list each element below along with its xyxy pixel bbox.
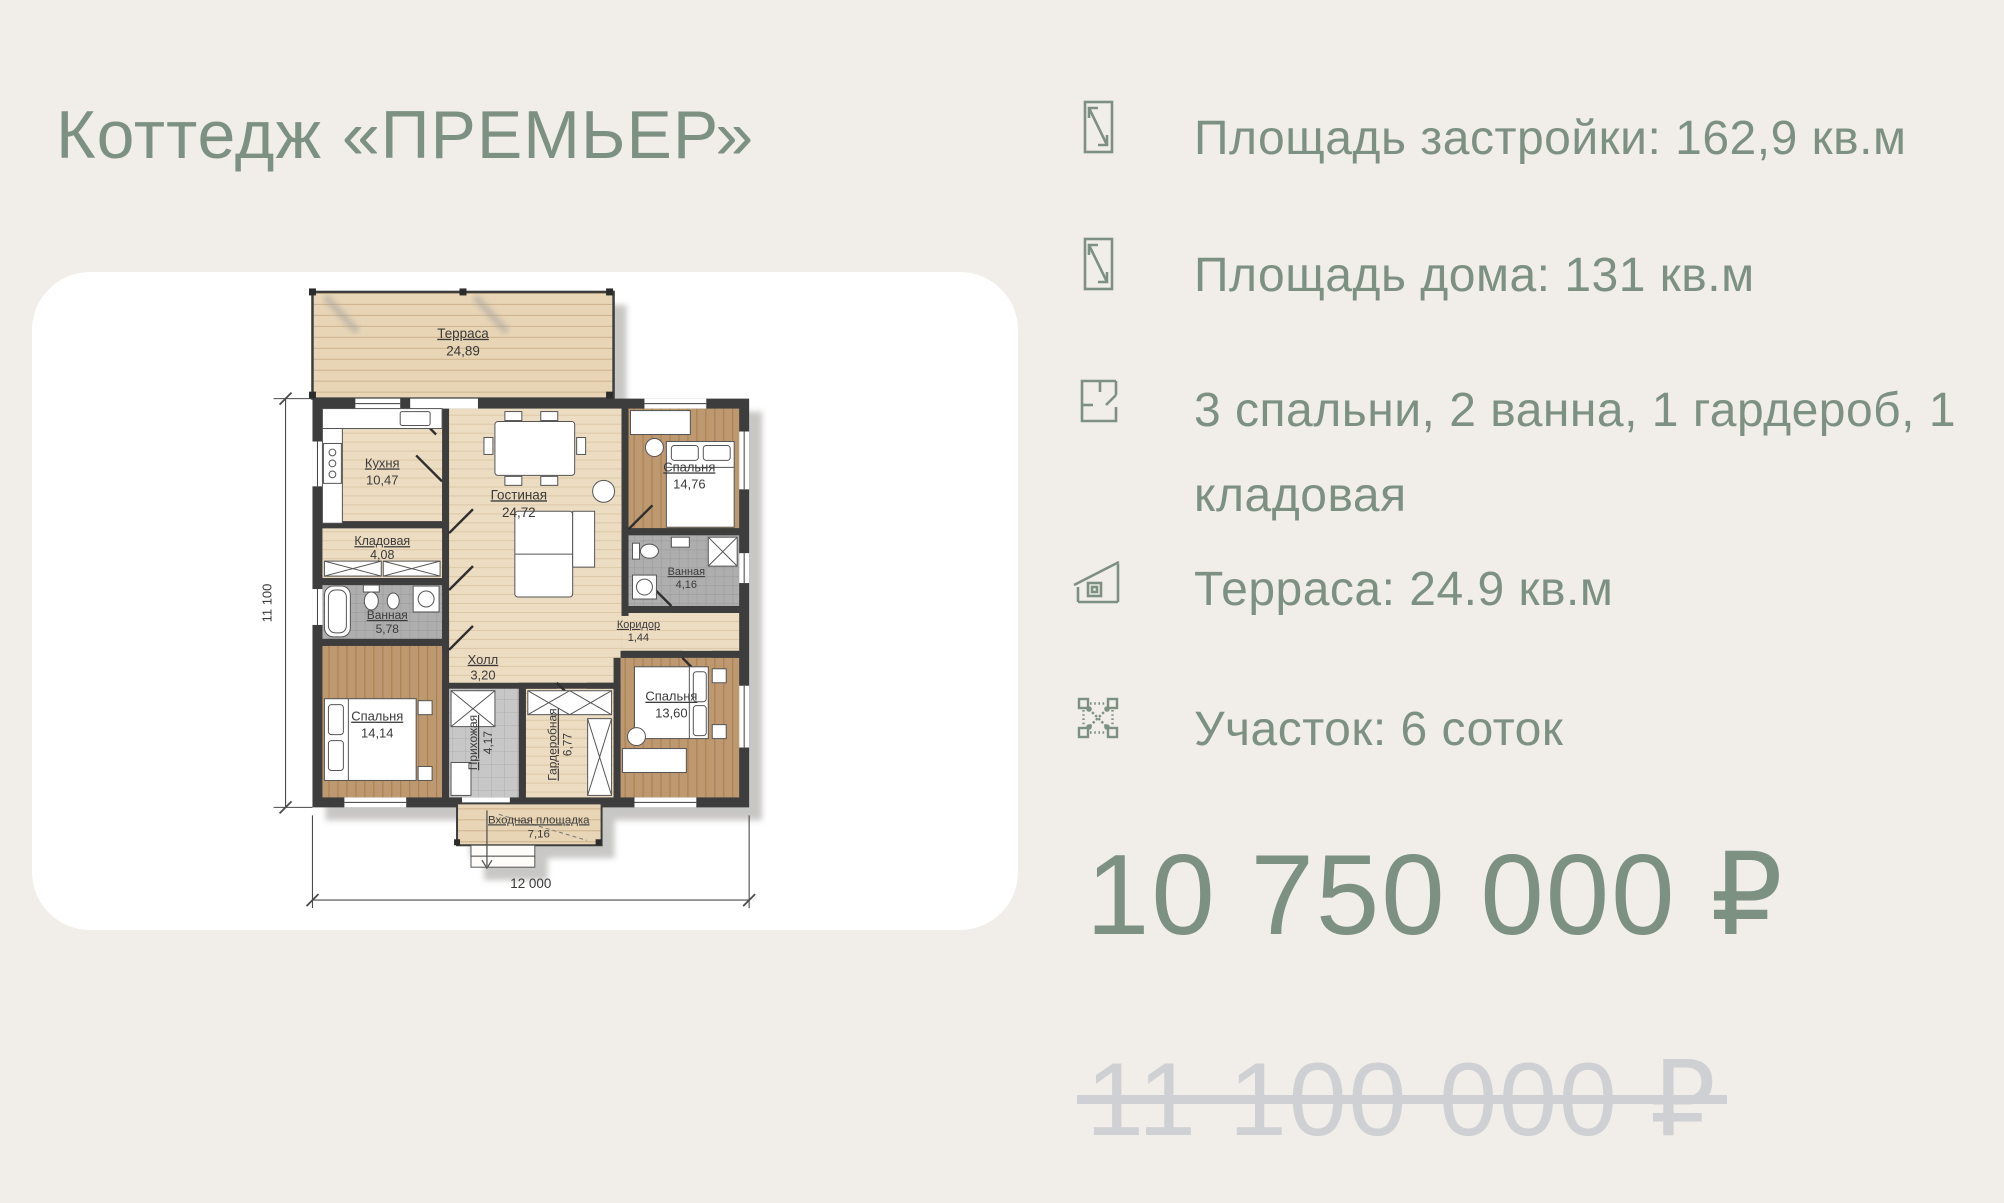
spec-row-rooms: 3 спальни, 2 ванна, 1 гардероб, 1 кладов…: [1072, 368, 1974, 539]
spec-row-house-area: Площадь дома: 131 кв.м: [1072, 233, 1755, 318]
room-label-bedroom-1: Спальня: [351, 709, 403, 724]
spec-build-area-text: Площадь застройки: 162,9 кв.м: [1194, 96, 1906, 181]
room-area-bedroom-1: 14,14: [361, 726, 393, 741]
room-label-terrace: Терраса: [437, 326, 489, 341]
room-label-corridor: Коридор: [617, 619, 660, 631]
spec-terrace-text: Терраса: 24.9 кв.м: [1194, 547, 1613, 632]
spec-plot-text: Участок: 6 соток: [1194, 687, 1563, 772]
floorplan-icon: [1072, 370, 1124, 428]
spec-row-build-area: Площадь застройки: 162,9 кв.м: [1072, 96, 1906, 181]
spec-row-terrace: Терраса: 24.9 кв.м: [1072, 547, 1613, 632]
room-area-entry-hall: 4,17: [481, 731, 495, 755]
old-price: 11 100 000 ₽: [1086, 1038, 1718, 1160]
room-label-kitchen: Кухня: [365, 455, 400, 470]
room-label-storage: Кладовая: [354, 534, 410, 548]
floorplan-card: Терраса 24,89: [32, 272, 1018, 930]
room-label-bedroom-3: Спальня: [645, 689, 697, 704]
room-area-kitchen: 10,47: [366, 472, 398, 487]
room-area-bedroom-3: 13,60: [655, 706, 687, 721]
room-area-bath-2: 4,16: [676, 579, 697, 591]
room-area-living: 24,72: [502, 505, 536, 520]
room-area-storage: 4,08: [370, 548, 394, 562]
room-label-bath-2: Ванная: [668, 566, 706, 578]
room-label-wardrobe: Гардеробная: [546, 708, 560, 780]
spec-rooms-text: 3 спальни, 2 ванна, 1 гардероб, 1 кладов…: [1194, 368, 1974, 539]
room-label-living: Гостиная: [491, 487, 547, 502]
diagonal-area-icon: [1072, 98, 1124, 156]
room-area-wardrobe: 6,77: [561, 733, 575, 757]
room-area-porch: 7,16: [528, 828, 550, 840]
dim-height-label: 11 100: [260, 584, 275, 623]
dim-width-label: 12 000: [510, 876, 551, 891]
room-label-entry-hall: Прихожая: [466, 715, 480, 770]
terrace: Терраса 24,89: [309, 288, 614, 398]
room-area-hall: 3,20: [470, 668, 495, 683]
room-area-terrace: 24,89: [446, 344, 480, 359]
room-area-bedroom-2: 14,76: [673, 476, 705, 491]
spec-row-plot: Участок: 6 соток: [1072, 687, 1563, 772]
floorplan-image: Терраса 24,89: [167, 272, 767, 930]
house-icon: [1072, 549, 1124, 607]
room-area-bath-1: 5,78: [376, 622, 400, 636]
diagonal-area-icon: [1072, 235, 1124, 293]
room-label-porch: Входная площадка: [488, 814, 590, 826]
spec-house-area-text: Площадь дома: 131 кв.м: [1194, 233, 1755, 318]
room-label-bedroom-2: Спальня: [663, 459, 715, 474]
page-title: Коттедж «ПРЕМЬЕР»: [56, 96, 754, 174]
land-plot-icon: [1072, 689, 1124, 747]
room-label-hall: Холл: [468, 652, 499, 667]
entrance-porch: Входная площадка 7,16: [454, 803, 602, 868]
room-area-corridor: 1,44: [628, 632, 649, 644]
current-price: 10 750 000 ₽: [1086, 828, 1785, 961]
room-label-bath-1: Ванная: [367, 608, 408, 622]
